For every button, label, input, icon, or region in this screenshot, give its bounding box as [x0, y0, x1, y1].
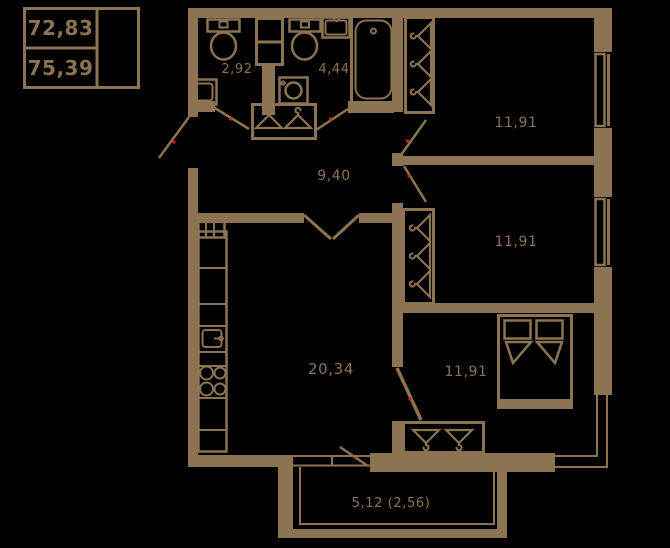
door-marker	[229, 118, 232, 121]
hanger-icon	[413, 430, 439, 450]
door-marker	[408, 175, 411, 178]
room-label-bathroom: 4,44	[318, 62, 349, 77]
toilet-icon	[208, 20, 240, 60]
room-label-hallway: 9,40	[317, 168, 351, 184]
door-marker	[173, 141, 176, 144]
room-label-bedroom-top: 11,91	[494, 115, 537, 131]
room-label-wc: 2,92	[221, 62, 252, 77]
bathroom-fixtures	[280, 16, 396, 104]
hanger-icon	[411, 23, 431, 49]
bedroom-top-wardrobe	[406, 18, 434, 113]
wall-right-c	[594, 267, 612, 395]
wall-bedroom1-2-divider	[398, 156, 594, 165]
door-swing-icon	[401, 120, 426, 155]
window-icon	[596, 199, 609, 265]
wardrobe-frame	[404, 423, 484, 453]
counter-dividers	[199, 268, 227, 430]
wall-bedroom3-left-upper	[392, 313, 403, 367]
wall-balcony-right	[497, 467, 507, 538]
wall-balcony-bottom	[278, 529, 507, 538]
door-marker	[406, 140, 409, 143]
hanger-icon	[410, 271, 430, 297]
bedroom-middle-wardrobe	[404, 210, 434, 304]
toilet-icon	[290, 20, 321, 60]
window-icon	[596, 54, 609, 126]
wall-living-top-right	[359, 213, 397, 223]
room-label-balcony: 5,12 (2,56)	[352, 496, 431, 511]
wall-left-lower	[188, 168, 198, 465]
door-swing-icon	[397, 368, 421, 420]
wall-right-b	[594, 128, 612, 197]
washing-machine-icon	[280, 78, 308, 104]
wall-right-a	[594, 8, 612, 52]
door-swing-icon	[159, 117, 189, 158]
floor-plan-canvas: 72,83 75,39	[0, 0, 670, 548]
room-label-living-kitchen: 20,34	[308, 360, 354, 378]
wall-bottom-left	[188, 455, 293, 467]
hanger-icon	[285, 108, 311, 128]
bed-icon	[499, 316, 572, 408]
wall-wc-bottom	[188, 101, 215, 112]
legend: 72,83 75,39	[25, 9, 139, 88]
room-labels: 2,92 4,44 9,40 11,91 11,91 11,91 20,34 5…	[221, 62, 537, 511]
wall-bedroom3-left-lower	[392, 421, 403, 455]
kitchen-sink-icon	[203, 330, 223, 347]
kitchen-counter	[199, 222, 227, 452]
hanger-icon	[446, 430, 472, 450]
living-opening-jambs	[304, 215, 359, 239]
wall-balcony-left	[278, 467, 293, 538]
hanger-icon	[410, 215, 430, 241]
bedroom-bottom-furniture	[404, 316, 572, 453]
room-label-bedroom-bottom: 11,91	[444, 364, 487, 380]
legend-area-reduced: 75,39	[28, 56, 94, 80]
hanger-icon	[410, 243, 430, 269]
bedroom-bottom-wardrobe	[404, 423, 484, 453]
sink-icon	[323, 16, 350, 38]
wall-bath-right	[392, 18, 403, 112]
legend-area-total: 72,83	[28, 16, 94, 40]
door-swing-icon	[404, 166, 426, 202]
wall-top	[188, 8, 612, 18]
door-marker	[329, 118, 332, 121]
room-label-bedroom-middle: 11,91	[494, 234, 537, 250]
stove-icon	[200, 367, 226, 396]
floor-plan-screenshot: 72,83 75,39	[0, 0, 670, 548]
hallway-closet	[253, 105, 316, 139]
hanger-icon	[411, 51, 431, 77]
door-markers	[173, 118, 412, 459]
walls	[188, 8, 612, 538]
hanger-icon	[411, 79, 431, 105]
door-marker	[409, 398, 412, 401]
bathtub-icon	[352, 17, 396, 103]
wall-bottom-right	[370, 453, 555, 472]
vent-shaft	[257, 19, 283, 65]
kitchen-upper-unit	[199, 222, 225, 238]
